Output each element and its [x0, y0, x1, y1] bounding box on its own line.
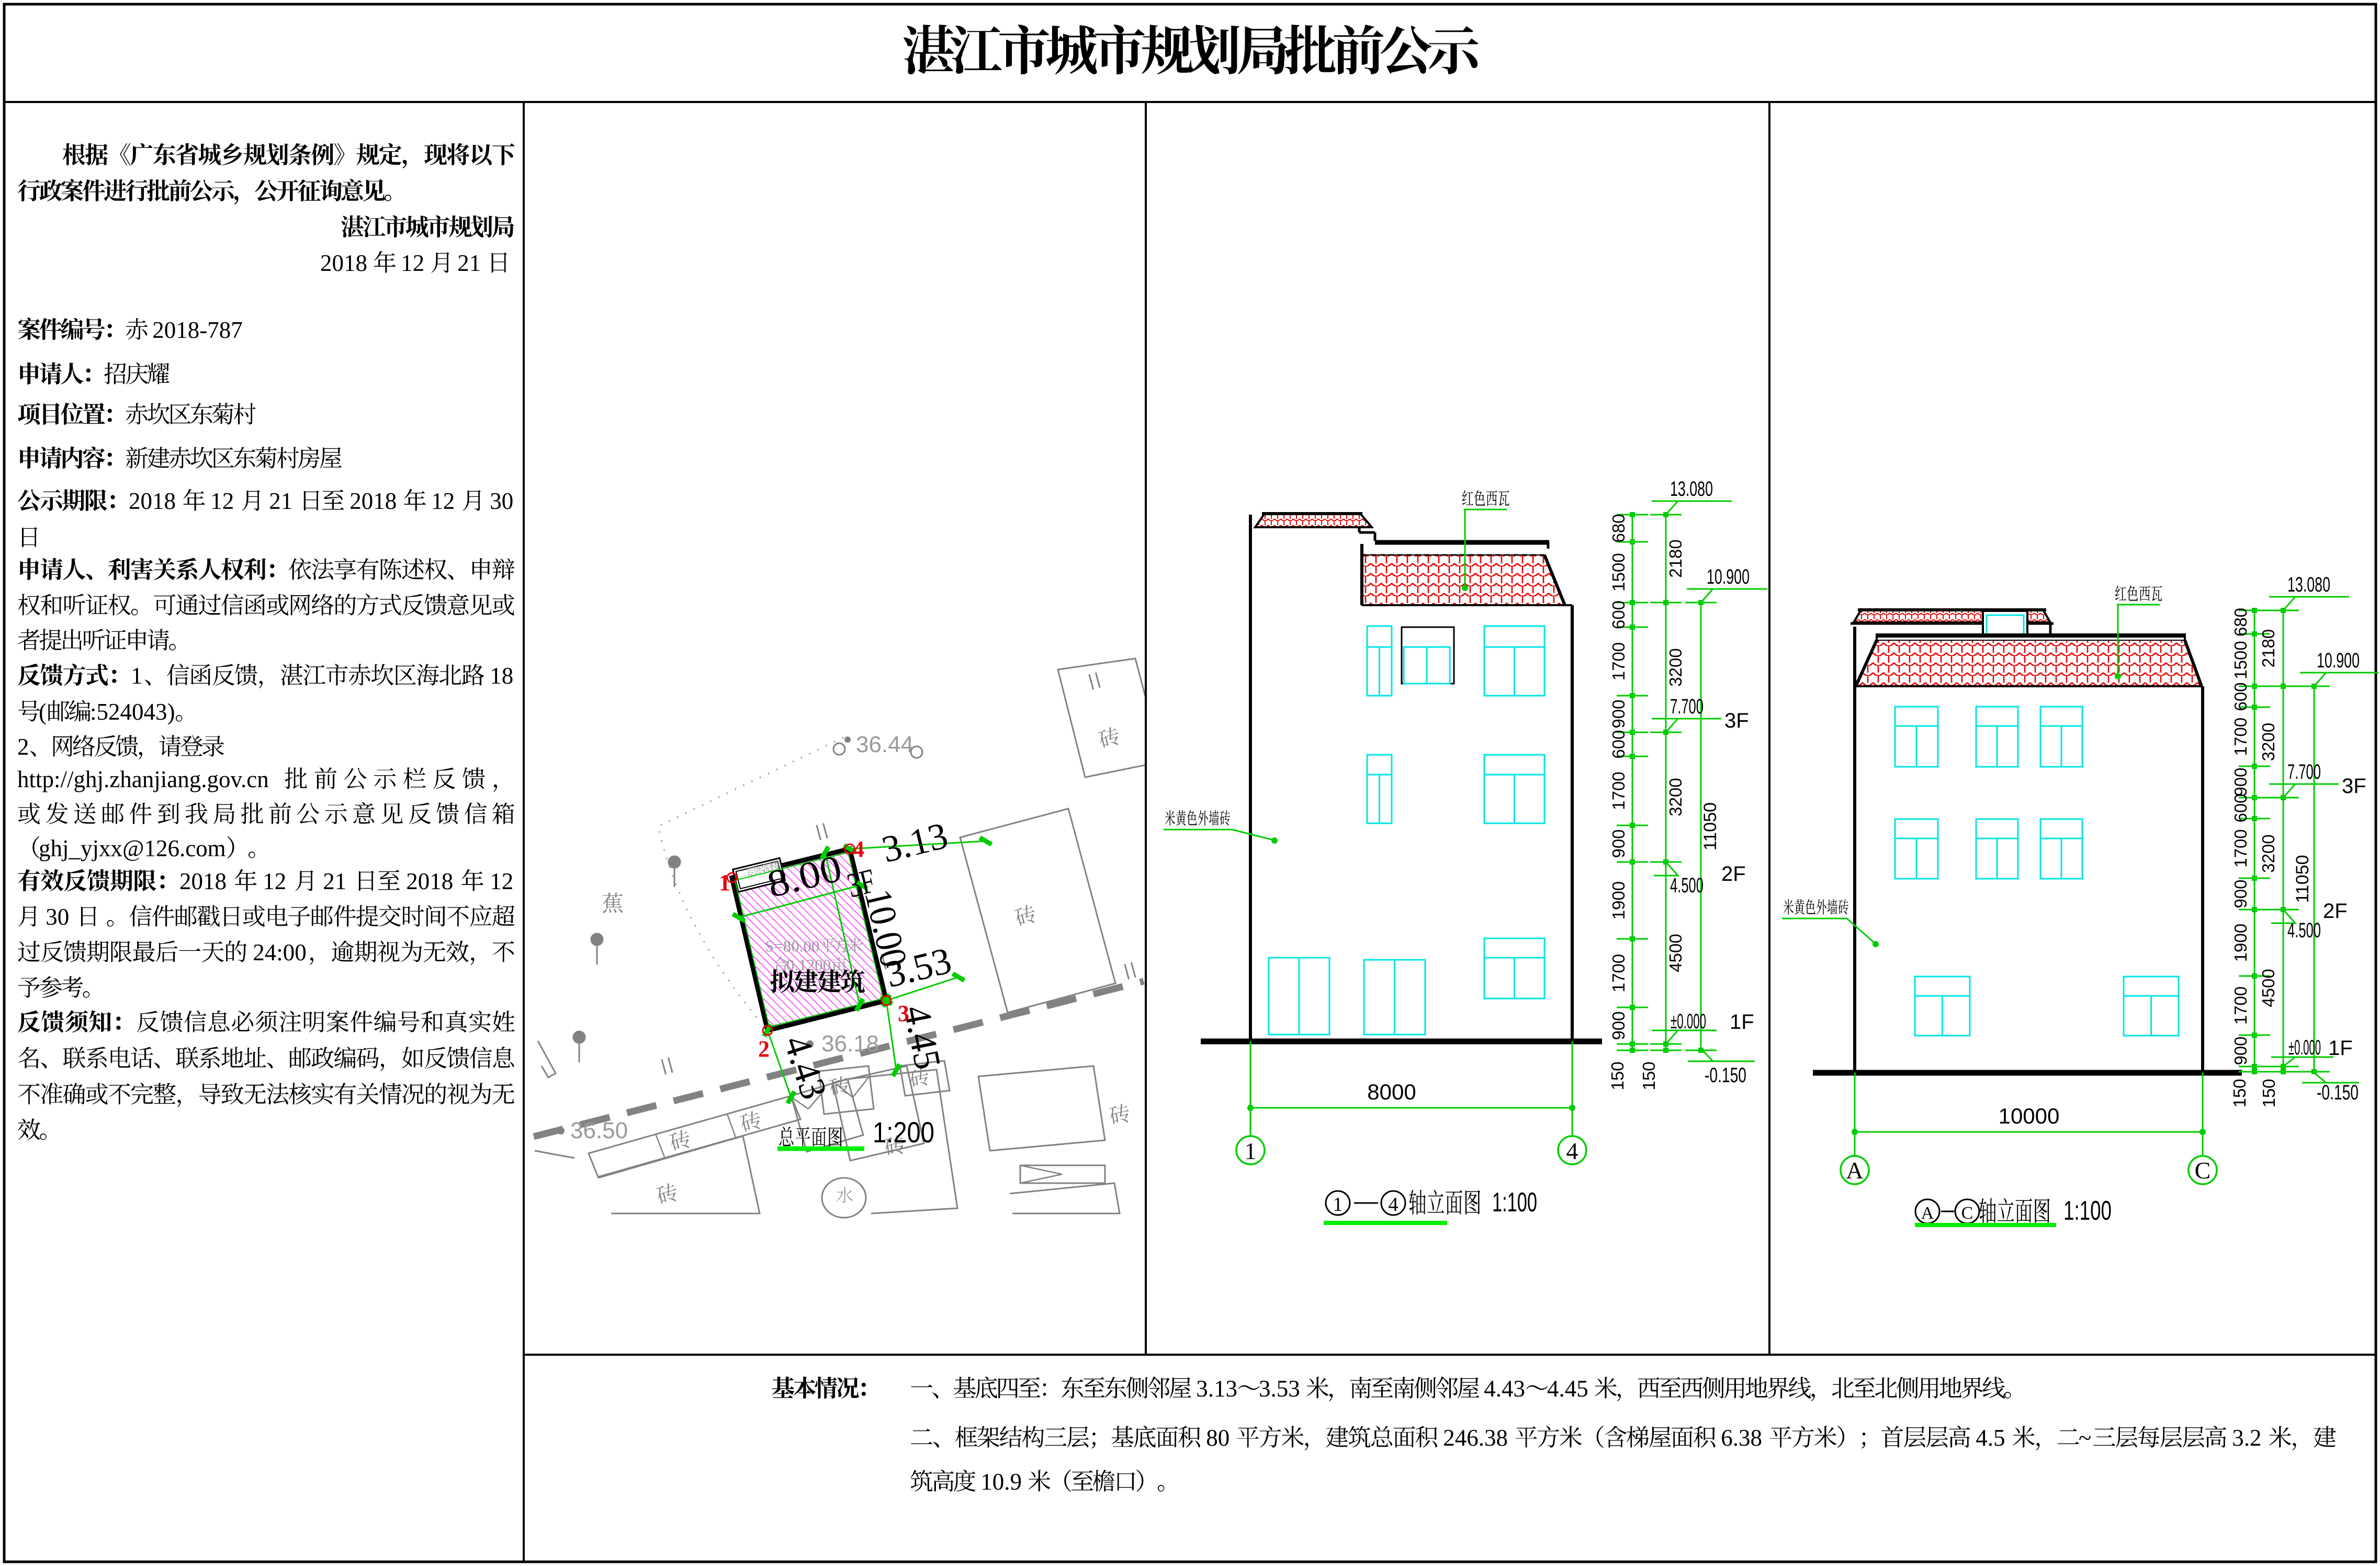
svg-text:36.50: 36.50 — [570, 1118, 628, 1143]
svg-text:36.44: 36.44 — [856, 732, 913, 757]
svg-text:C: C — [2195, 1157, 2211, 1184]
svg-text:2: 2 — [17, 734, 29, 760]
svg-text:4500: 4500 — [1666, 934, 1685, 972]
svg-text:A: A — [1921, 1204, 1934, 1223]
svg-text:24:00: 24:00 — [247, 939, 307, 966]
svg-text:1700: 1700 — [1609, 642, 1628, 680]
svg-text:3200: 3200 — [1666, 778, 1685, 816]
svg-text:2018: 2018 — [344, 488, 403, 514]
svg-text:900: 900 — [1609, 699, 1628, 728]
svg-text:900: 900 — [2231, 1036, 2250, 1065]
svg-text:1:100: 1:100 — [2063, 1196, 2112, 1226]
svg-text:4500: 4500 — [2259, 969, 2278, 1007]
svg-text:4.45: 4.45 — [1547, 1376, 1594, 1402]
svg-text:ghj_yjxx@126.com: ghj_yjxx@126.com — [39, 835, 226, 861]
svg-text:30: 30 — [484, 488, 513, 514]
svg-text:6.38: 6.38 — [1715, 1425, 1768, 1451]
svg-text:2018: 2018 — [320, 250, 373, 276]
svg-text:900: 900 — [1609, 1011, 1628, 1040]
svg-text:3.2: 3.2 — [2226, 1425, 2268, 1451]
svg-text:2180: 2180 — [2259, 629, 2278, 667]
svg-text:1: 1 — [131, 663, 143, 689]
svg-text:1:200: 1:200 — [873, 1116, 934, 1149]
svg-text:-0.150: -0.150 — [2317, 1081, 2359, 1104]
svg-text:18: 18 — [484, 663, 513, 689]
svg-text:1500: 1500 — [1609, 553, 1628, 591]
svg-text:11050: 11050 — [1700, 802, 1720, 850]
svg-text:3200: 3200 — [2259, 723, 2278, 761]
svg-text:1900: 1900 — [1609, 881, 1628, 920]
svg-text:1F: 1F — [2328, 1037, 2353, 1060]
svg-text:C: C — [1961, 1204, 1973, 1223]
svg-text:A: A — [1846, 1157, 1863, 1184]
svg-text:2018: 2018 — [129, 488, 182, 514]
svg-text:10.900: 10.900 — [2317, 649, 2360, 672]
svg-text:7.700: 7.700 — [1670, 695, 1704, 718]
svg-text:S=80.00: S=80.00 — [765, 937, 819, 955]
svg-text:36.18: 36.18 — [821, 1031, 879, 1057]
svg-text:1: 1 — [1245, 1138, 1257, 1164]
svg-text:http://ghj.zhanjiang.gov.cn: http://ghj.zhanjiang.gov.cn — [17, 766, 275, 792]
svg-text:1: 1 — [719, 870, 730, 895]
svg-text:3F: 3F — [2342, 775, 2366, 798]
svg-text:1700: 1700 — [1609, 771, 1628, 810]
svg-text:3200: 3200 — [2259, 834, 2278, 872]
svg-text::524043): :524043) — [90, 699, 175, 725]
svg-text:600: 600 — [2231, 793, 2250, 822]
svg-text:4: 4 — [1566, 1138, 1578, 1164]
svg-text:1900: 1900 — [2231, 924, 2250, 962]
svg-text:11050: 11050 — [2293, 855, 2313, 903]
svg-text:±0.000: ±0.000 — [1671, 1010, 1706, 1033]
svg-text:1700: 1700 — [1609, 954, 1628, 992]
svg-text:3.13: 3.13 — [1190, 1376, 1237, 1402]
svg-text:21: 21 — [263, 488, 299, 514]
svg-text:680: 680 — [2231, 608, 2250, 637]
svg-text:150: 150 — [2259, 1079, 2279, 1107]
svg-text:2180: 2180 — [1666, 539, 1685, 577]
svg-text:4.500: 4.500 — [1670, 874, 1704, 897]
svg-text:4: 4 — [1389, 1194, 1398, 1216]
svg-text:7.700: 7.700 — [2287, 761, 2321, 784]
svg-text:246.38: 246.38 — [1437, 1425, 1514, 1451]
svg-text:12: 12 — [205, 488, 240, 514]
svg-text:600: 600 — [1609, 600, 1628, 629]
svg-text:12: 12 — [425, 488, 461, 514]
svg-text:12: 12 — [395, 250, 431, 276]
svg-text:1F: 1F — [1730, 1011, 1754, 1034]
svg-text:8000: 8000 — [1367, 1080, 1416, 1104]
svg-text:600: 600 — [1609, 730, 1628, 758]
svg-text:600: 600 — [2231, 682, 2250, 711]
svg-text:30: 30 — [40, 904, 75, 930]
svg-text:3F: 3F — [1724, 709, 1749, 732]
svg-text:13.080: 13.080 — [1670, 478, 1713, 501]
svg-text:2: 2 — [758, 1036, 770, 1062]
svg-text:4: 4 — [853, 836, 864, 862]
svg-text:900: 900 — [2231, 767, 2250, 796]
svg-text:900: 900 — [1609, 829, 1628, 858]
svg-text:-0.150: -0.150 — [1705, 1064, 1746, 1087]
svg-text:2F: 2F — [1721, 863, 1746, 886]
svg-text:21: 21 — [452, 250, 487, 276]
svg-text:1: 1 — [1333, 1194, 1343, 1216]
svg-text:4.43: 4.43 — [1478, 1376, 1525, 1402]
svg-text:1:100: 1:100 — [1492, 1187, 1537, 1218]
svg-text:10.9: 10.9 — [975, 1469, 1028, 1495]
svg-text:13.080: 13.080 — [2287, 573, 2330, 596]
svg-text:~: ~ — [2079, 1425, 2091, 1451]
svg-text:1700: 1700 — [2231, 986, 2250, 1025]
svg-text:1700: 1700 — [2231, 829, 2250, 867]
svg-text:1700: 1700 — [2231, 718, 2250, 756]
svg-text:1500: 1500 — [2231, 641, 2250, 679]
svg-text:80: 80 — [1200, 1425, 1236, 1451]
svg-text:900: 900 — [2231, 879, 2250, 908]
svg-text:3200: 3200 — [1666, 648, 1685, 686]
svg-text:4.5: 4.5 — [1970, 1425, 2011, 1451]
svg-text:2F: 2F — [2323, 900, 2348, 923]
svg-text:150: 150 — [1639, 1061, 1659, 1090]
svg-text:21: 21 — [317, 868, 353, 894]
svg-text:±0.000: ±0.000 — [2288, 1036, 2321, 1059]
svg-text:680: 680 — [1609, 514, 1628, 542]
svg-text:10000: 10000 — [1999, 1104, 2060, 1128]
svg-text:12: 12 — [484, 868, 513, 894]
svg-text:12: 12 — [257, 868, 292, 894]
svg-text:(: ( — [39, 699, 47, 725]
svg-text:4.500: 4.500 — [2287, 919, 2321, 942]
svg-text:3.53: 3.53 — [1259, 1376, 1306, 1402]
svg-text:2018: 2018 — [400, 868, 459, 894]
svg-text:10.900: 10.900 — [1707, 565, 1750, 588]
svg-text:150: 150 — [1608, 1061, 1627, 1090]
svg-text:2018-787: 2018-787 — [146, 317, 243, 343]
svg-text:2018: 2018 — [179, 868, 232, 894]
svg-text:150: 150 — [2230, 1079, 2249, 1107]
